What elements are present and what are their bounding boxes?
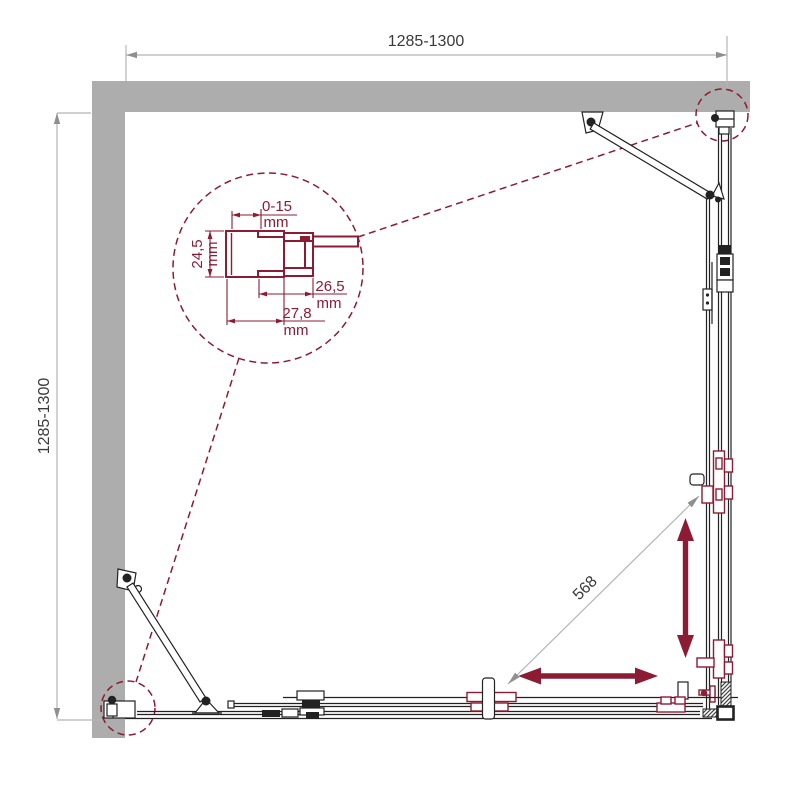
detail-dim-outer: 27,8 mm	[227, 278, 325, 339]
wall-top	[92, 81, 750, 112]
support-bar-bottom	[117, 569, 222, 713]
detail-dim-depth: 24,5 mm	[189, 231, 224, 277]
detail-dim-adjust: 0-15 mm	[232, 198, 297, 231]
right-door-handle	[690, 474, 704, 485]
detail-adjust-unit: mm	[264, 214, 289, 231]
support-bar-top	[582, 112, 724, 203]
detail-leader-lines	[136, 123, 697, 682]
right-door-assembly	[582, 111, 734, 713]
top-width-dimension: 1285-1300	[126, 33, 727, 89]
detail-outer-unit: mm	[284, 322, 309, 339]
drawing-svg: 1285-1300 1285-1300 0	[0, 0, 800, 800]
detail-inner-value: 26,5	[315, 278, 344, 295]
detail-outer-value: 27,8	[282, 305, 311, 322]
entry-width-label: 568	[570, 573, 601, 604]
left-height-label: 1285-1300	[36, 378, 53, 455]
bottom-door-assembly	[104, 569, 738, 719]
detail-inner-unit: mm	[317, 295, 342, 312]
glass-panel-section	[313, 237, 358, 247]
profile-detail-drawing	[226, 231, 358, 277]
entry-width-dimension: 568	[508, 496, 699, 684]
detail-adjust-value: 0-15	[262, 198, 292, 215]
top-width-label: 1285-1300	[388, 33, 465, 50]
right-roller-carriage-mid	[690, 451, 733, 513]
detail-depth-unit: mm	[204, 242, 221, 267]
bottom-roller-hardware	[262, 691, 324, 718]
slide-direction-arrow-vertical	[677, 518, 694, 658]
wall-left	[92, 112, 125, 738]
walls	[92, 81, 750, 738]
technical-drawing-canvas: 1285-1300 1285-1300 0	[0, 0, 800, 800]
slide-direction-arrows	[518, 518, 694, 685]
slide-direction-arrow-horizontal	[518, 668, 658, 685]
bottom-door-handle	[483, 678, 495, 719]
